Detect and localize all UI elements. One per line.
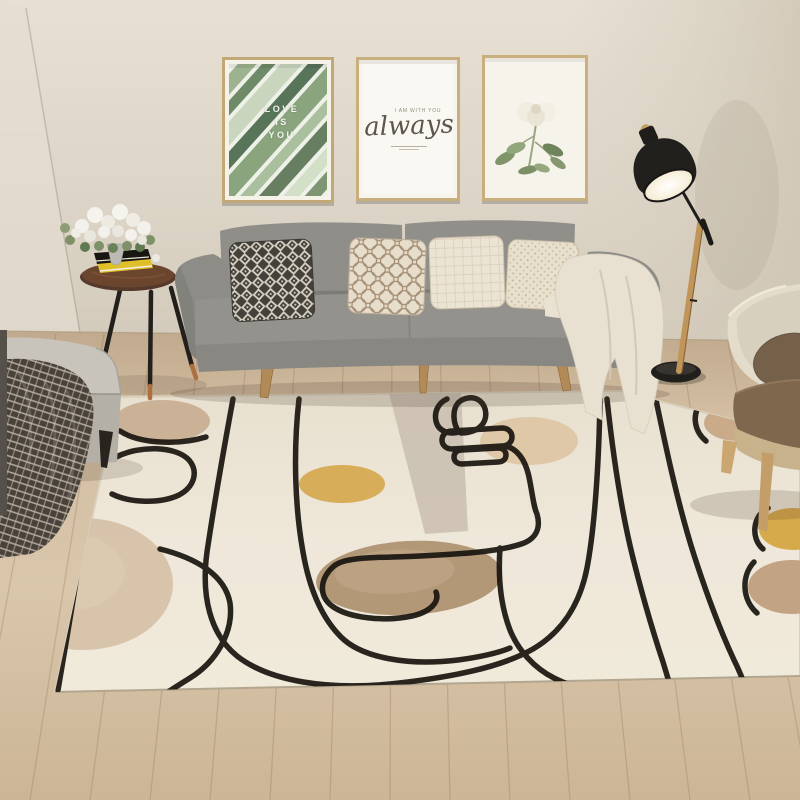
living-room-scene: LOVE IS YOU I AM WITH YOU always [0,0,800,800]
picture-frame-middle [356,57,460,204]
area-rug [0,391,800,692]
window-frame-edge [0,330,7,515]
room-illustration [0,0,800,800]
picture-frame-right [482,55,588,204]
pillow-trellis [348,238,427,316]
script-artwork [363,64,453,194]
lamp-wall-shadow [695,100,779,290]
rug-shape-yellow-center [299,465,385,503]
pillow-plain [429,236,505,310]
rug-shape-tan-center [480,417,578,465]
pillow-geometric [229,239,315,322]
